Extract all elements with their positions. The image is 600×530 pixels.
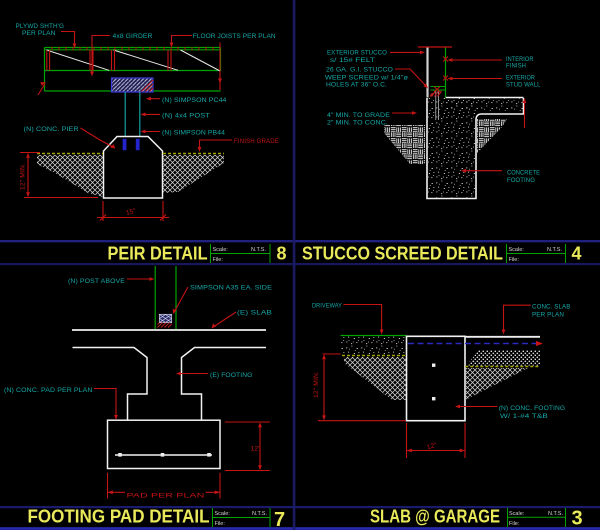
svg-text:Scale:: Scale: [213, 247, 229, 253]
svg-text:EXTERIOR STUCCO: EXTERIOR STUCCO [327, 50, 387, 57]
svg-text:PEIR DETAIL: PEIR DETAIL [108, 244, 208, 264]
svg-text:PER PLAN: PER PLAN [532, 312, 564, 319]
svg-text:(N) CONC. FOOTING: (N) CONC. FOOTING [499, 405, 566, 412]
svg-text:(N) POST ABOVE: (N) POST ABOVE [68, 278, 125, 285]
svg-text:4" MIN. TO GRADE: 4" MIN. TO GRADE [327, 112, 390, 119]
svg-text:(N) SIMPSON PC44: (N) SIMPSON PC44 [162, 97, 227, 104]
svg-text:(E) FOOTING: (E) FOOTING [210, 372, 253, 379]
svg-text:PAD PER PLAN: PAD PER PLAN [127, 492, 205, 499]
svg-text:File:: File: [509, 521, 520, 527]
svg-text:EXTERIOR: EXTERIOR [506, 75, 535, 82]
svg-text:3: 3 [572, 508, 583, 530]
svg-text:SIMPSON A35 EA. SIDE: SIMPSON A35 EA. SIDE [190, 285, 272, 292]
svg-text:12": 12" [251, 446, 262, 453]
svg-text:4x8 GIRDER: 4x8 GIRDER [113, 33, 153, 40]
svg-text:12" MIN.: 12" MIN. [313, 371, 320, 398]
svg-text:HOLES AT 36" O.C.: HOLES AT 36" O.C. [326, 82, 387, 89]
svg-text:(E) SLAB: (E) SLAB [237, 310, 273, 317]
svg-text:FOOTING PAD DETAIL: FOOTING PAD DETAIL [28, 507, 210, 527]
svg-text:N.T.S.: N.T.S. [251, 247, 266, 253]
svg-text:s/ 15# FELT: s/ 15# FELT [330, 57, 375, 64]
svg-text:PER PLAN: PER PLAN [22, 30, 56, 37]
svg-text:W/ 1-#4 T&B: W/ 1-#4 T&B [500, 413, 549, 420]
svg-text:N.T.S.: N.T.S. [548, 511, 563, 517]
svg-text:SLAB @ GARAGE: SLAB @ GARAGE [370, 507, 500, 527]
svg-text:(N) SIMPSON PB44: (N) SIMPSON PB44 [162, 130, 225, 137]
svg-text:N.T.S.: N.T.S. [252, 511, 267, 517]
svg-text:8: 8 [277, 244, 287, 264]
svg-text:12" MIN.: 12" MIN. [20, 163, 27, 190]
svg-text:4: 4 [572, 244, 582, 264]
svg-text:(N) CONC. PAD PER PLAN: (N) CONC. PAD PER PLAN [4, 387, 93, 394]
svg-text:File:: File: [213, 257, 224, 263]
svg-text:7: 7 [274, 509, 285, 530]
svg-text:26 GA. G.I. STUCCO: 26 GA. G.I. STUCCO [326, 67, 393, 74]
svg-text:Scale:: Scale: [215, 511, 231, 517]
svg-text:Scale:: Scale: [509, 511, 525, 517]
svg-text:STUCCO SCREED DETAIL: STUCCO SCREED DETAIL [302, 244, 503, 264]
svg-text:File:: File: [215, 521, 226, 527]
svg-text:N.T.S.: N.T.S. [547, 247, 562, 253]
svg-text:(N) CONC. PIER: (N) CONC. PIER [24, 126, 79, 133]
svg-text:STUD WALL: STUD WALL [506, 82, 541, 89]
svg-text:FINISH GRADE: FINISH GRADE [234, 138, 279, 145]
svg-text:DRIVEWAY: DRIVEWAY [312, 303, 342, 310]
svg-text:PLYWD SHTH'G: PLYWD SHTH'G [16, 23, 65, 30]
svg-text:FINISH: FINISH [506, 63, 526, 70]
svg-text:Scale:: Scale: [509, 247, 525, 253]
svg-text:2" MIN. TO CONC.: 2" MIN. TO CONC. [327, 120, 388, 127]
svg-text:(N) 4x4 POST: (N) 4x4 POST [162, 113, 210, 120]
svg-text:FOOTING: FOOTING [507, 177, 535, 184]
svg-text:WEEP SCREED w/ 1/4"ø: WEEP SCREED w/ 1/4"ø [325, 75, 408, 82]
svg-text:CONC. SLAB: CONC. SLAB [532, 304, 571, 311]
svg-text:File:: File: [509, 257, 520, 263]
svg-text:CONCRETE: CONCRETE [507, 170, 540, 177]
svg-text:FLOOR JOISTS PER PLAN: FLOOR JOISTS PER PLAN [193, 33, 276, 40]
